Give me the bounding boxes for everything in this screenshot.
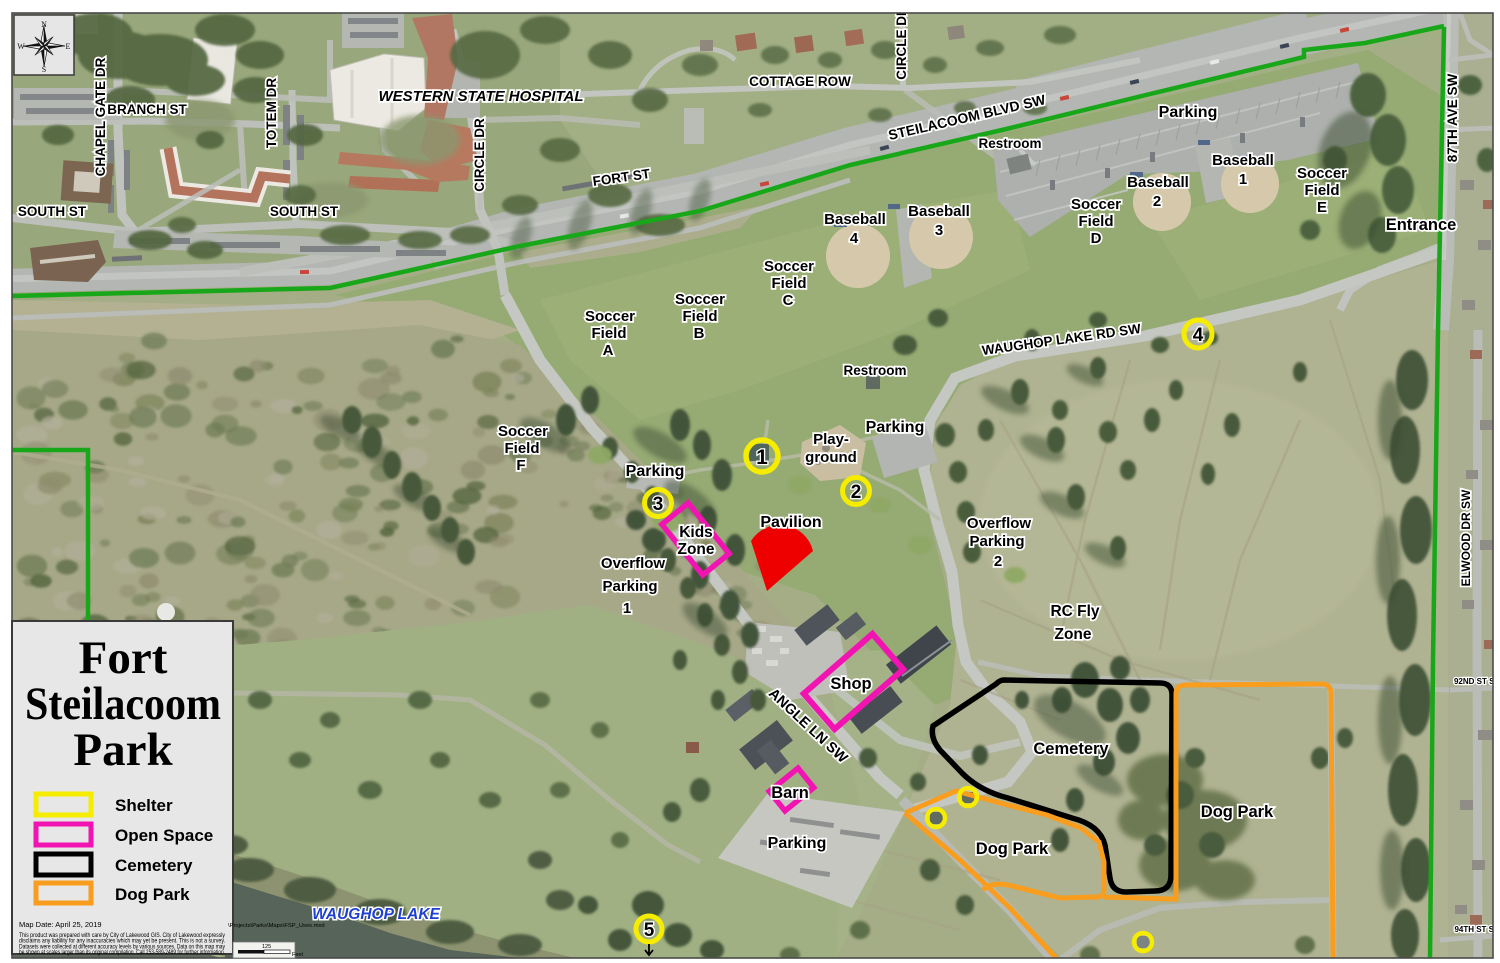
svg-text:Overflow: Overflow bbox=[601, 555, 666, 572]
svg-text:SOUTH ST: SOUTH ST bbox=[18, 204, 87, 219]
svg-text:Entrance: Entrance bbox=[1386, 216, 1457, 234]
svg-text:D: D bbox=[1091, 230, 1102, 247]
svg-text:Barn: Barn bbox=[771, 784, 809, 802]
svg-text:Kids: Kids bbox=[679, 524, 713, 541]
svg-text:Feet: Feet bbox=[292, 952, 303, 958]
svg-text:Field: Field bbox=[591, 325, 626, 342]
svg-text:A: A bbox=[603, 342, 614, 359]
svg-text:Pavilion: Pavilion bbox=[760, 514, 821, 531]
svg-text:CHAPEL GATE DR: CHAPEL GATE DR bbox=[93, 57, 108, 176]
svg-text:Baseball: Baseball bbox=[1127, 174, 1189, 191]
svg-text:Field: Field bbox=[1078, 213, 1113, 230]
svg-text:Dog Park: Dog Park bbox=[115, 885, 190, 904]
svg-text:COTTAGE ROW: COTTAGE ROW bbox=[749, 74, 851, 89]
svg-text:Dog Park: Dog Park bbox=[976, 840, 1049, 858]
svg-text:Field: Field bbox=[1304, 182, 1339, 199]
svg-text:2: 2 bbox=[1153, 193, 1161, 210]
svg-text:1: 1 bbox=[1239, 171, 1247, 188]
svg-text:S: S bbox=[42, 65, 46, 74]
svg-text:Shelter: Shelter bbox=[115, 796, 173, 815]
svg-text:F: F bbox=[516, 457, 525, 474]
svg-text:\Projects\Parks\Maps\FSP_Uses.: \Projects\Parks\Maps\FSP_Uses.mxd bbox=[228, 923, 325, 929]
svg-text:Parking: Parking bbox=[602, 578, 657, 595]
svg-text:Zone: Zone bbox=[1054, 626, 1091, 643]
svg-text:3: 3 bbox=[653, 494, 664, 515]
svg-text:Shop: Shop bbox=[830, 675, 871, 693]
svg-text:Parking: Parking bbox=[969, 533, 1024, 550]
svg-text:Park: Park bbox=[73, 724, 173, 776]
svg-text:4: 4 bbox=[850, 230, 859, 247]
svg-text:Zone: Zone bbox=[677, 541, 714, 558]
svg-text:Steilacoom: Steilacoom bbox=[25, 678, 221, 730]
svg-text:WESTERN STATE HOSPITAL: WESTERN STATE HOSPITAL bbox=[379, 88, 584, 105]
svg-text:TOTEM DR: TOTEM DR bbox=[264, 78, 279, 148]
svg-text:Field: Field bbox=[771, 275, 806, 292]
svg-text:RC Fly: RC Fly bbox=[1050, 603, 1099, 620]
svg-text:E: E bbox=[66, 42, 71, 51]
svg-text:Soccer: Soccer bbox=[585, 308, 635, 325]
svg-text:Cemetery: Cemetery bbox=[1033, 740, 1109, 758]
svg-text:125: 125 bbox=[262, 944, 271, 950]
svg-text:2: 2 bbox=[851, 482, 862, 503]
svg-text:Overflow: Overflow bbox=[967, 515, 1032, 532]
svg-text:Baseball: Baseball bbox=[908, 203, 970, 220]
svg-text:Field: Field bbox=[682, 308, 717, 325]
svg-text:B: B bbox=[694, 325, 705, 342]
svg-text:be shown at scales larger than: be shown at scales larger than its origi… bbox=[19, 949, 225, 956]
svg-text:87TH AVE SW: 87TH AVE SW bbox=[1445, 73, 1460, 162]
svg-text:Parking: Parking bbox=[768, 835, 827, 852]
svg-text:ground: ground bbox=[805, 449, 857, 466]
svg-text:Cemetery: Cemetery bbox=[115, 856, 193, 875]
svg-text:C: C bbox=[783, 292, 794, 309]
svg-text:Open Space: Open Space bbox=[115, 826, 213, 845]
svg-text:BRANCH ST: BRANCH ST bbox=[107, 102, 187, 117]
svg-text:Parking: Parking bbox=[1159, 104, 1218, 121]
svg-text:1: 1 bbox=[623, 600, 631, 617]
svg-text:Soccer: Soccer bbox=[498, 423, 548, 440]
svg-text:CIRCLE DR: CIRCLE DR bbox=[894, 6, 909, 80]
svg-text:Soccer: Soccer bbox=[675, 291, 725, 308]
svg-text:5: 5 bbox=[644, 920, 655, 941]
svg-text:4: 4 bbox=[1193, 325, 1204, 346]
svg-text:Restroom: Restroom bbox=[978, 136, 1041, 151]
svg-text:Baseball: Baseball bbox=[1212, 152, 1274, 169]
svg-text:Soccer: Soccer bbox=[1071, 196, 1121, 213]
svg-text:Parking: Parking bbox=[626, 463, 685, 480]
svg-text:Baseball: Baseball bbox=[824, 211, 886, 228]
svg-text:Soccer: Soccer bbox=[1297, 165, 1347, 182]
svg-text:Soccer: Soccer bbox=[764, 258, 814, 275]
svg-text:Play-: Play- bbox=[813, 431, 849, 448]
svg-text:Dog Park: Dog Park bbox=[1201, 803, 1274, 821]
svg-text:WAUGHOP LAKE: WAUGHOP LAKE bbox=[312, 906, 440, 923]
svg-text:N: N bbox=[41, 20, 47, 29]
svg-text:W: W bbox=[17, 42, 25, 51]
svg-text:E: E bbox=[1317, 199, 1327, 216]
svg-text:3: 3 bbox=[935, 222, 943, 239]
svg-text:Map Date: April 25, 2019: Map Date: April 25, 2019 bbox=[19, 920, 102, 929]
svg-text:1: 1 bbox=[756, 446, 768, 469]
svg-text:Parking: Parking bbox=[866, 419, 925, 436]
svg-text:ELWOOD DR SW: ELWOOD DR SW bbox=[1459, 489, 1473, 586]
svg-text:2: 2 bbox=[994, 553, 1002, 570]
svg-text:Fort: Fort bbox=[79, 632, 168, 684]
svg-text:SOUTH ST: SOUTH ST bbox=[270, 204, 339, 219]
svg-text:Field: Field bbox=[504, 440, 539, 457]
svg-text:Restroom: Restroom bbox=[843, 363, 906, 378]
svg-text:CIRCLE DR: CIRCLE DR bbox=[472, 118, 487, 192]
